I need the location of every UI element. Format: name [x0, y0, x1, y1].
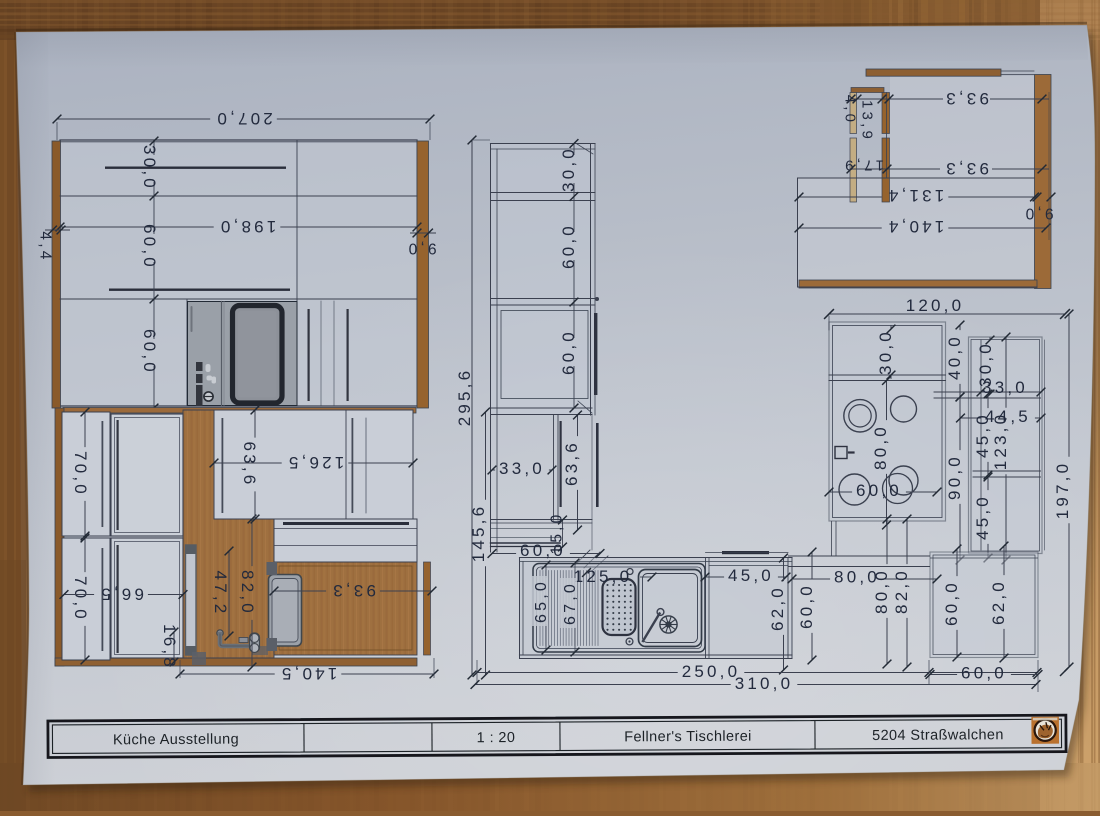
- svg-text:80,0: 80,0: [871, 424, 890, 470]
- svg-text:90,0: 90,0: [945, 454, 964, 500]
- svg-text:125,0: 125,0: [574, 567, 633, 586]
- svg-text:198,0: 198,0: [218, 217, 277, 236]
- svg-text:Küche Ausstellung: Küche Ausstellung: [113, 732, 239, 749]
- svg-text:197,0: 197,0: [1053, 461, 1072, 520]
- svg-text:40,0: 40,0: [945, 334, 964, 380]
- svg-text:145,6: 145,6: [469, 504, 488, 563]
- svg-text:60,0: 60,0: [797, 583, 816, 629]
- svg-text:80,0: 80,0: [872, 568, 891, 614]
- svg-text:120,0: 120,0: [906, 296, 965, 315]
- svg-text:82,0: 82,0: [238, 570, 257, 616]
- svg-text:126,5: 126,5: [286, 453, 345, 472]
- svg-text:123,0: 123,0: [991, 412, 1010, 471]
- svg-text:47,2: 47,2: [211, 571, 230, 617]
- svg-text:63,6: 63,6: [562, 440, 581, 486]
- svg-text:70,0: 70,0: [71, 451, 90, 497]
- svg-text:62,0: 62,0: [768, 585, 787, 631]
- svg-text:30,0: 30,0: [559, 146, 578, 192]
- svg-text:66,5: 66,5: [98, 584, 144, 603]
- svg-text:33,0: 33,0: [499, 459, 545, 478]
- svg-text:4,4: 4,4: [36, 231, 53, 262]
- svg-text:63,6: 63,6: [240, 442, 259, 488]
- svg-text:45,0: 45,0: [973, 412, 992, 458]
- svg-text:17,9: 17,9: [842, 157, 884, 174]
- svg-text:67,0: 67,0: [562, 581, 579, 625]
- svg-text:70,0: 70,0: [71, 576, 90, 622]
- svg-text:310,0: 310,0: [735, 674, 794, 693]
- svg-text:131,4: 131,4: [886, 186, 945, 205]
- svg-text:60,0: 60,0: [961, 664, 1007, 683]
- svg-text:62,0: 62,0: [989, 579, 1008, 625]
- svg-text:5204 Straßwalchen: 5204 Straßwalchen: [872, 727, 1004, 744]
- svg-text:33,0: 33,0: [982, 378, 1028, 397]
- svg-text:93,3: 93,3: [943, 159, 989, 178]
- svg-text:93,3: 93,3: [330, 581, 376, 600]
- svg-text:45,0: 45,0: [728, 566, 774, 585]
- svg-text:65,0: 65,0: [533, 579, 550, 623]
- svg-text:60,0: 60,0: [559, 223, 578, 269]
- svg-text:4,0: 4,0: [842, 95, 859, 125]
- svg-text:60,0: 60,0: [942, 580, 961, 626]
- svg-text:1 : 20: 1 : 20: [477, 730, 516, 746]
- svg-text:16,8: 16,8: [160, 624, 179, 670]
- svg-text:60,0: 60,0: [559, 329, 578, 375]
- svg-text:82,0: 82,0: [892, 568, 911, 614]
- svg-text:13,9: 13,9: [859, 100, 876, 142]
- svg-text:60,0: 60,0: [140, 329, 159, 375]
- svg-text:140,5: 140,5: [279, 664, 338, 683]
- svg-text:60,0: 60,0: [140, 224, 159, 270]
- svg-text:207,0: 207,0: [214, 109, 273, 128]
- svg-text:60,0: 60,0: [856, 481, 902, 500]
- svg-text:30,0: 30,0: [140, 145, 159, 191]
- svg-text:295,6: 295,6: [455, 368, 474, 427]
- svg-text:93,3: 93,3: [943, 89, 989, 108]
- svg-text:9,0: 9,0: [405, 239, 436, 256]
- svg-text:45,0: 45,0: [973, 494, 992, 540]
- svg-text:250,0: 250,0: [682, 662, 741, 681]
- svg-text:30,0: 30,0: [876, 329, 895, 375]
- svg-text:60,0: 60,0: [520, 541, 566, 560]
- svg-text:Fellner's Tischlerei: Fellner's Tischlerei: [624, 729, 752, 746]
- svg-text:140,4: 140,4: [886, 217, 945, 236]
